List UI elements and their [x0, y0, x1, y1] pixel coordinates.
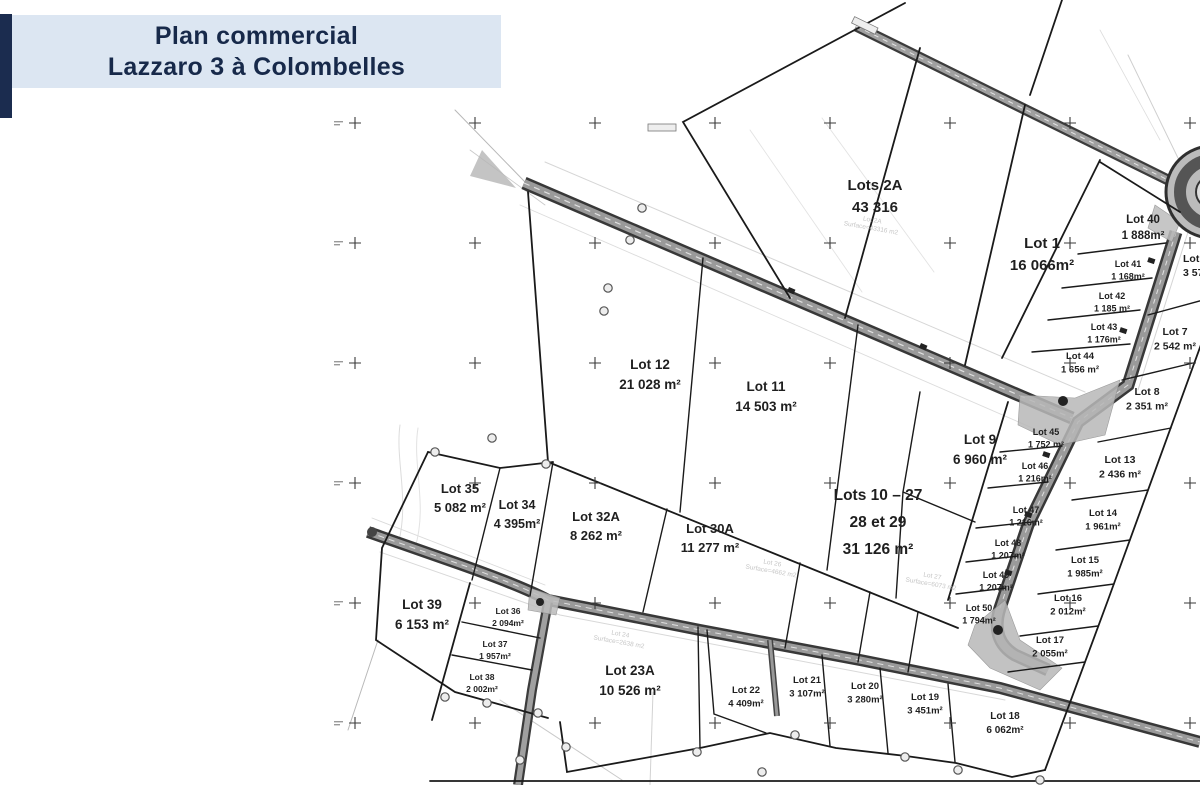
lot-label-lot-21: Lot 213 107m²	[789, 675, 824, 700]
road-main-diagonal	[524, 183, 1072, 418]
lot-label-lot-38: Lot 382 002m²	[466, 672, 498, 694]
lot-label-lot-16: Lot 162 012m²	[1050, 593, 1085, 618]
title-block: Plan commercial Lazzaro 3 à Colombelles	[12, 15, 501, 88]
title-accent-stripe	[0, 14, 12, 118]
lot-label-lot-22: Lot 224 409m²	[728, 685, 763, 710]
lot-label-lot-11: Lot 1114 503 m²	[735, 379, 797, 414]
lane-22-21	[770, 640, 777, 716]
small-label-boxes	[648, 17, 878, 131]
road-north	[856, 26, 1168, 180]
lot-label-lot-19: Lot 193 451m²	[907, 692, 942, 717]
lot-label-lot-13: Lot 132 436 m²	[1099, 454, 1142, 481]
lot-label-lot-41: Lot 411 168m²	[1111, 259, 1145, 282]
lot-label-lots-10-27: Lots 10 – 2728 et 2931 126 m²	[834, 487, 923, 558]
page-title-line2: Lazzaro 3 à Colombelles	[108, 52, 405, 83]
lot-label-lot-34: Lot 344 395m²	[494, 498, 541, 531]
lot-label-lot-35: Lot 355 082 m²	[434, 481, 487, 515]
underlay-label-2: Lot 26Surface=4662 m2	[745, 556, 799, 580]
road-arrow	[470, 150, 516, 188]
site-plan-map: Lot 2ASurface=43316 m2Lot 24Surface=2638…	[0, 0, 1200, 785]
lot-label-lot-37: Lot 371 957m²	[479, 639, 511, 661]
underlay-label-3: Lot 27Surface=6073 m2	[905, 569, 959, 593]
lot-label-lot-1: Lot 116 066m²	[1010, 235, 1074, 274]
lot-label-lot-14: Lot 141 961m²	[1085, 508, 1120, 533]
lot-label-lot-36: Lot 362 094m²	[492, 606, 524, 628]
lot-label-lot-32a: Lot 32A8 262 m²	[570, 509, 623, 543]
lot-label-lot-42: Lot 421 185 m²	[1094, 291, 1130, 314]
lot-label-lot-39: Lot 396 153 m²	[395, 597, 450, 632]
grid-tick-marks	[334, 121, 343, 725]
lot-boundaries	[376, 0, 1200, 781]
lot-label-lots-2a: Lots 2A43 316	[847, 177, 902, 216]
lot-label-lot-20: Lot 203 280m²	[847, 681, 882, 706]
lot-label-lot-18: Lot 186 062m²	[986, 711, 1024, 736]
lot-label-lot-8: Lot 82 351 m²	[1126, 386, 1169, 413]
road-east	[997, 232, 1176, 670]
underlay-labels-layer: Lot 2ASurface=43316 m2Lot 24Surface=2638…	[593, 212, 959, 650]
lot-label-lot-30a: Lot 30A11 277 m²	[681, 521, 740, 555]
site-plan-page: Lot 2ASurface=43316 m2Lot 24Surface=2638…	[0, 0, 1200, 785]
lot-label-lot-23a: Lot 23A10 526 m²	[599, 663, 661, 698]
lot-label-lot-9: Lot 96 960 m²	[953, 432, 1008, 467]
lot-label-lot-43: Lot 431 176m²	[1087, 322, 1121, 345]
lot-label-lot-7: Lot 72 542 m²	[1154, 326, 1197, 353]
lot-label-lot-12: Lot 1221 028 m²	[619, 357, 681, 392]
lot-label-lot-edge-partial: Lot3 57	[1183, 253, 1200, 279]
survey-markers	[431, 204, 1044, 784]
lot-label-lot-15: Lot 151 985m²	[1067, 555, 1102, 580]
lot-label-lot-17: Lot 172 055m²	[1032, 635, 1067, 660]
page-title-line1: Plan commercial	[155, 21, 358, 52]
